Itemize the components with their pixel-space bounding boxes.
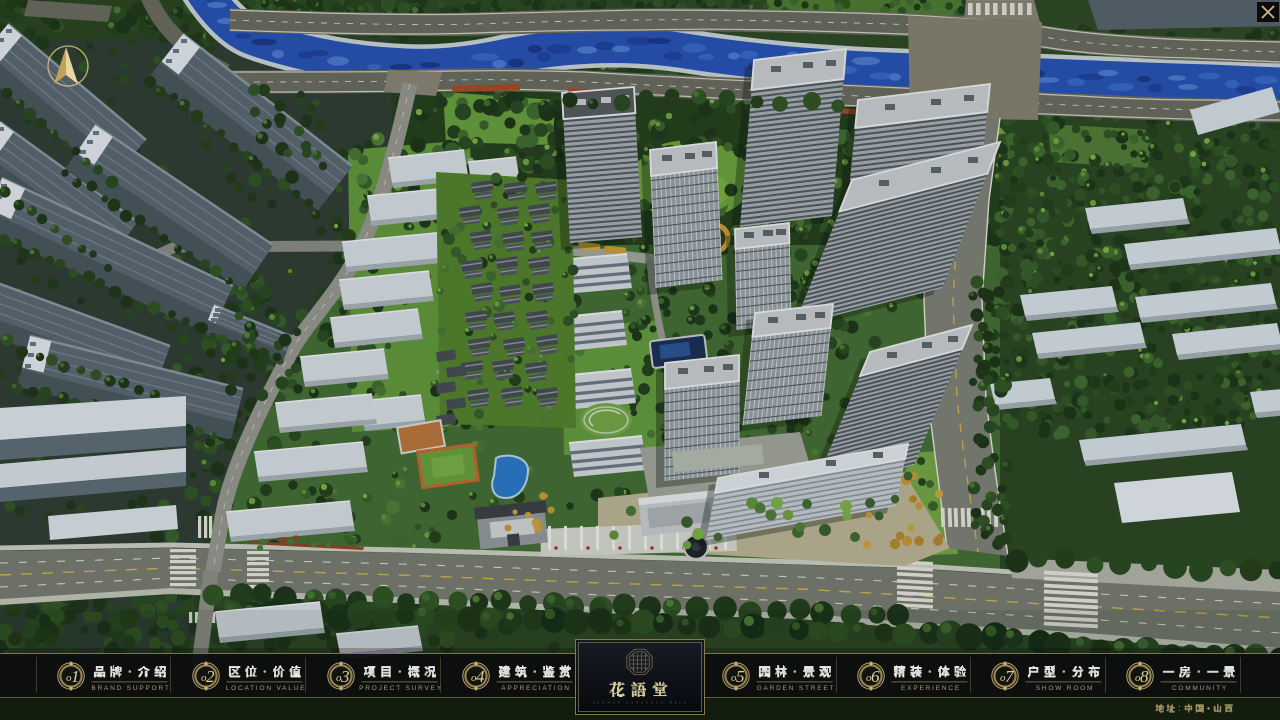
svg-text:3: 3 bbox=[340, 667, 350, 686]
svg-text:BRAND SUPPORT: BRAND SUPPORT bbox=[91, 685, 170, 692]
svg-text:2: 2 bbox=[206, 667, 215, 686]
svg-text:LOCATION VALUE: LOCATION VALUE bbox=[226, 685, 307, 692]
svg-text:1: 1 bbox=[71, 667, 80, 686]
